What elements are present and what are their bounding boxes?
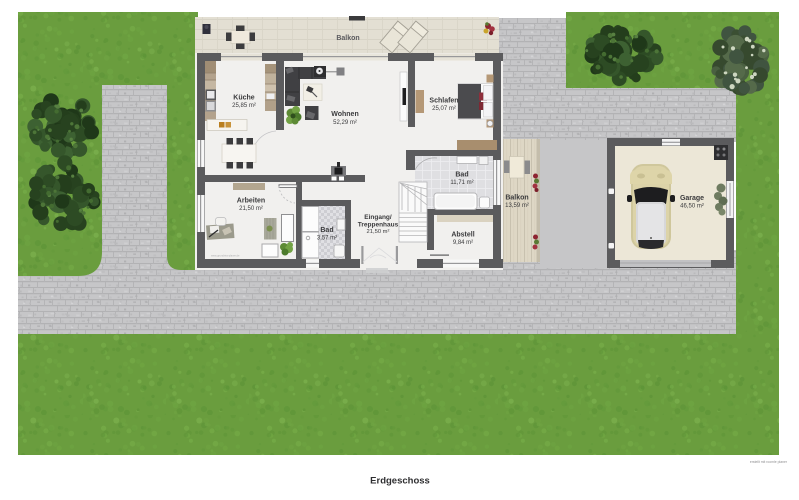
svg-text:Balkon: Balkon xyxy=(505,195,528,202)
svg-text:Bad: Bad xyxy=(320,227,333,234)
svg-text:Treppenhaus: Treppenhaus xyxy=(358,222,399,229)
svg-text:25,07 m²: 25,07 m² xyxy=(432,106,456,112)
svg-text:13,59 m²: 13,59 m² xyxy=(505,203,529,209)
svg-text:21,50 m²: 21,50 m² xyxy=(367,229,390,235)
svg-text:www.grundriss-planer.de: www.grundriss-planer.de xyxy=(211,254,240,258)
svg-text:Wohnen: Wohnen xyxy=(331,111,358,118)
svg-text:erstellt mit roomle planer: erstellt mit roomle planer xyxy=(750,460,788,464)
svg-text:21,50 m²: 21,50 m² xyxy=(239,206,263,212)
svg-text:Erdgeschoss: Erdgeschoss xyxy=(370,476,430,487)
svg-text:Eingang/: Eingang/ xyxy=(364,214,392,221)
svg-text:46,50 m²: 46,50 m² xyxy=(680,204,704,210)
svg-text:3,57 m²: 3,57 m² xyxy=(317,236,337,242)
svg-text:Abstell: Abstell xyxy=(451,232,474,239)
svg-text:25,85 m²: 25,85 m² xyxy=(232,103,256,109)
svg-text:Balkon: Balkon xyxy=(336,35,359,42)
svg-text:Schlafen: Schlafen xyxy=(429,98,458,105)
svg-text:Arbeiten: Arbeiten xyxy=(237,198,265,205)
svg-text:9,84 m²: 9,84 m² xyxy=(453,240,473,246)
svg-text:Bad: Bad xyxy=(455,172,468,179)
svg-text:52,29 m²: 52,29 m² xyxy=(333,120,357,126)
svg-text:11,71 m²: 11,71 m² xyxy=(450,180,473,186)
svg-text:Garage: Garage xyxy=(680,195,704,202)
svg-text:Küche: Küche xyxy=(233,95,255,102)
